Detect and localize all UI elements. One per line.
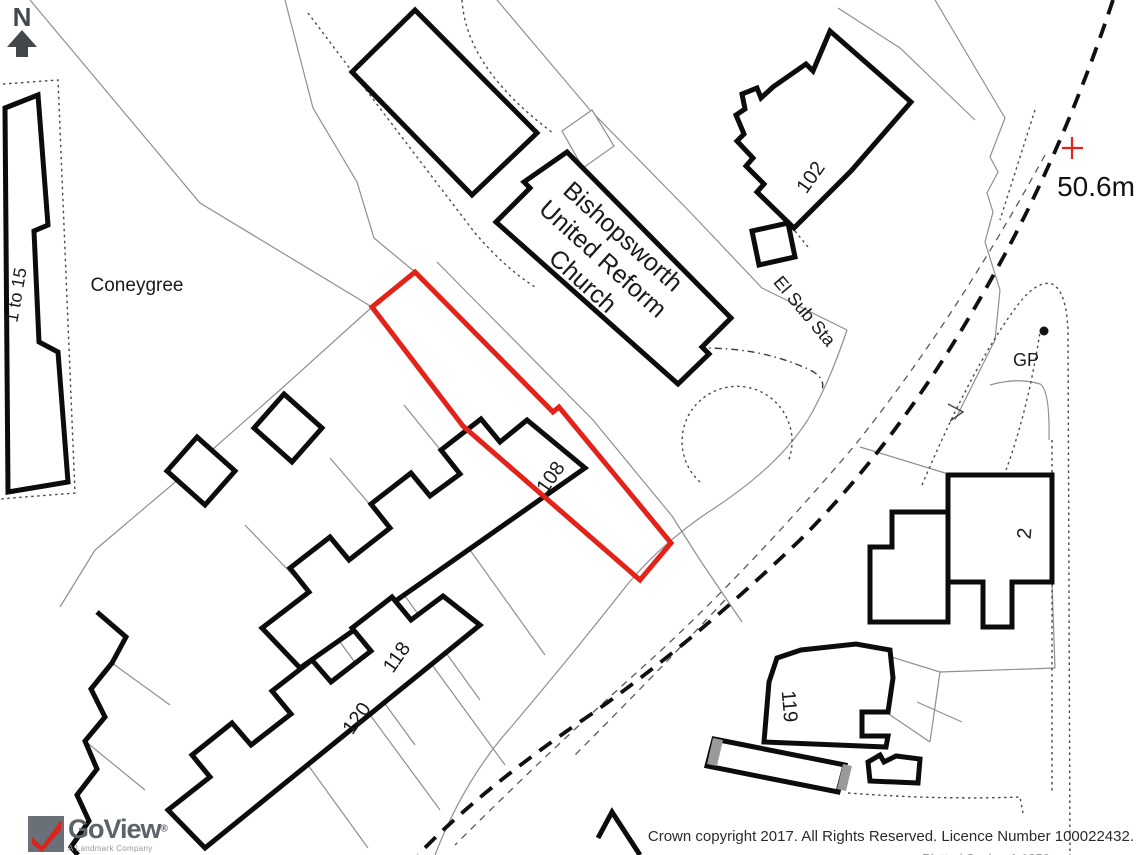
label-2: 2 [1014, 527, 1037, 540]
buildings [5, 10, 1052, 855]
registered-mark: ® [161, 824, 168, 835]
north-label: N [13, 2, 32, 32]
plotted-scale-clipped: Plotted Scale - 1:1250 [922, 851, 1050, 855]
gp-post-dot [1040, 327, 1049, 336]
goview-logo-subtitle: A Landmark Company [68, 844, 168, 853]
parcel-lines [30, 0, 1055, 855]
building-102 [736, 31, 911, 228]
spot-height-marker: 50.6m [1057, 137, 1135, 202]
spot-height-cross-icon [1062, 137, 1083, 159]
copyright-notice: Crown copyright 2017. All Rights Reserve… [648, 828, 1134, 845]
outbuilding-1 [167, 437, 235, 505]
label-coneygree: Coneygree [91, 275, 184, 296]
site-plan-map: N 50.6m 1 to 15 Coneygree Bishopsworth U… [0, 0, 1140, 855]
building-top-centre [352, 10, 537, 195]
label-el-sub-sta: El Sub Sta [770, 272, 841, 351]
goview-logo-text: GoView [68, 814, 161, 844]
building-partial-bottom [598, 812, 640, 855]
building-2-annex [870, 512, 948, 622]
north-arrow-icon [7, 30, 37, 57]
building-2 [948, 475, 1052, 627]
building-small-right [868, 755, 920, 783]
label-gp: GP [1013, 350, 1039, 370]
label-119: 119 [777, 690, 802, 724]
north-arrow: N [7, 2, 37, 57]
map-canvas: N 50.6m 1 to 15 Coneygree Bishopsworth U… [0, 0, 1140, 855]
goview-logo-icon [28, 816, 64, 852]
spot-height-label: 50.6m [1057, 171, 1135, 202]
goview-logo: GoView® A Landmark Company [28, 816, 168, 853]
building-el-sub-sta [752, 223, 795, 265]
